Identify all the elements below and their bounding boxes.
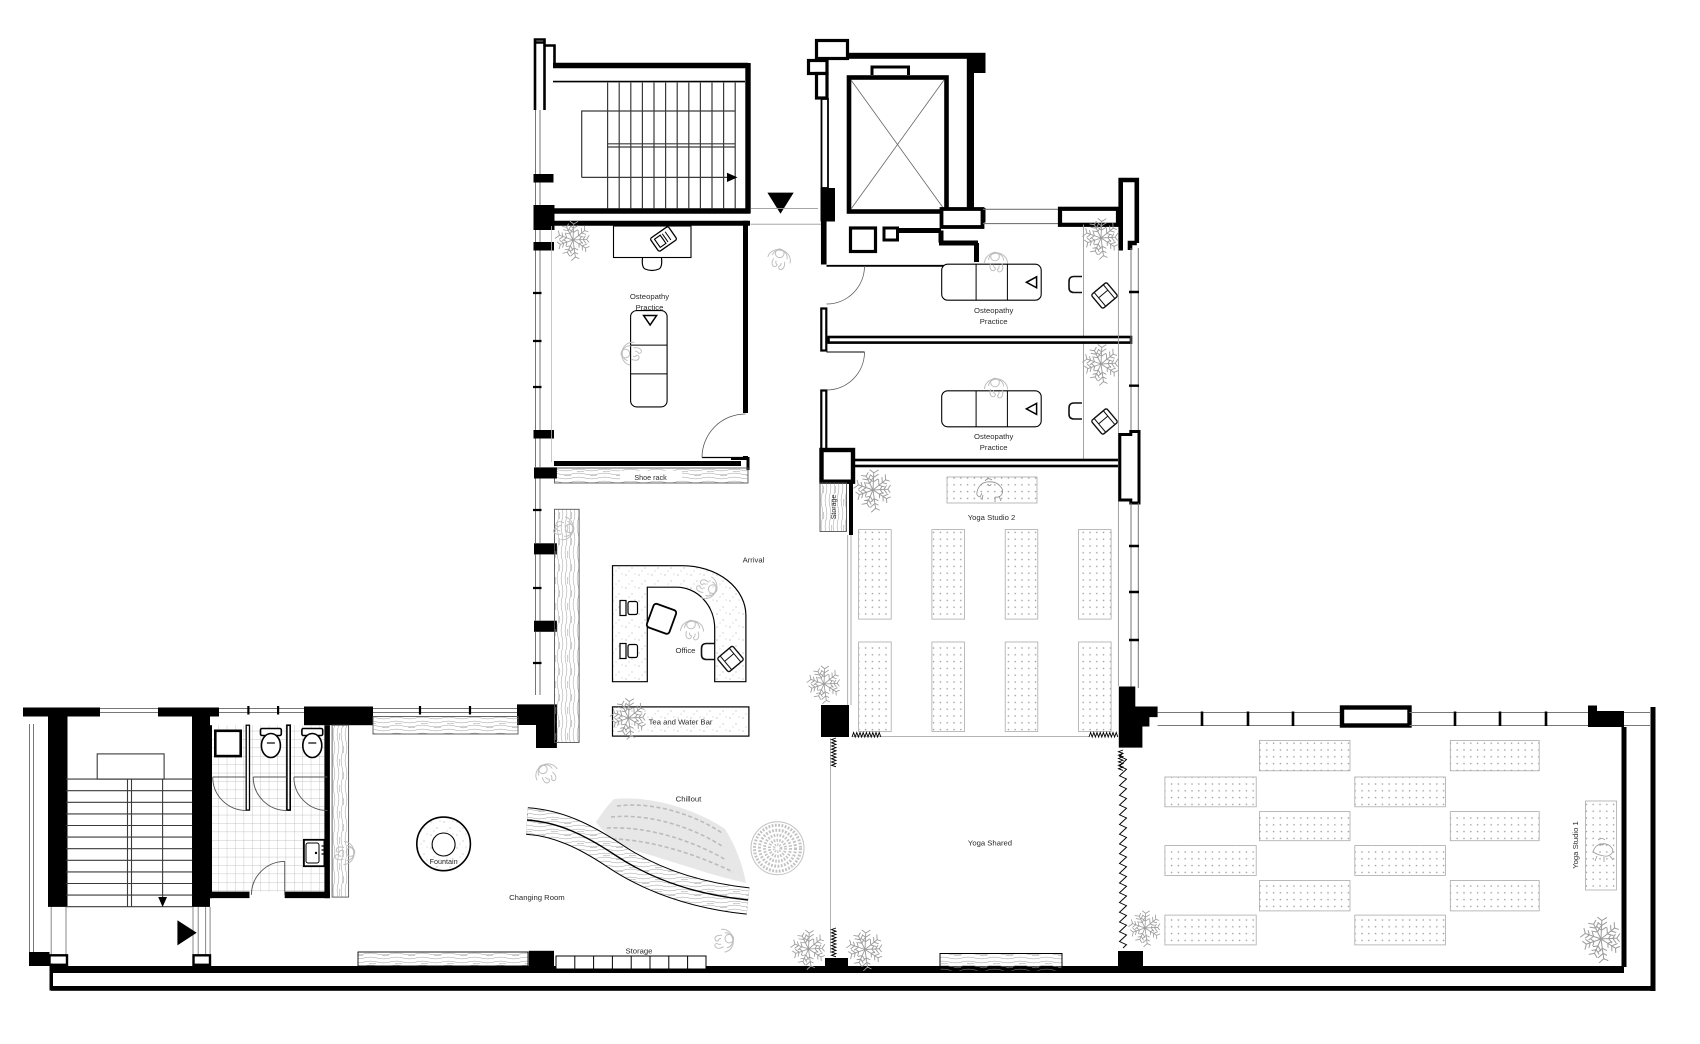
svg-text:Changing Room: Changing Room <box>509 893 565 902</box>
svg-text:Practice: Practice <box>980 317 1008 326</box>
svg-text:Storage: Storage <box>831 495 838 520</box>
svg-text:Arrival: Arrival <box>743 556 765 565</box>
svg-text:Tea and Water Bar: Tea and Water Bar <box>649 718 713 727</box>
svg-text:Practice: Practice <box>980 443 1008 452</box>
svg-text:Osteopathy: Osteopathy <box>974 306 1013 315</box>
svg-text:Osteopathy: Osteopathy <box>974 432 1013 441</box>
svg-text:Chillout: Chillout <box>676 795 703 804</box>
svg-text:Yoga Shared: Yoga Shared <box>968 839 1012 848</box>
svg-text:Storage: Storage <box>626 947 653 956</box>
svg-text:Yoga Studio 1: Yoga Studio 1 <box>1571 821 1580 869</box>
svg-text:Shoe rack: Shoe rack <box>634 473 667 482</box>
svg-text:Osteopathy: Osteopathy <box>630 292 669 301</box>
svg-text:Fountain: Fountain <box>430 857 458 866</box>
svg-text:Office: Office <box>676 646 696 655</box>
svg-text:Yoga Studio 2: Yoga Studio 2 <box>968 513 1016 522</box>
